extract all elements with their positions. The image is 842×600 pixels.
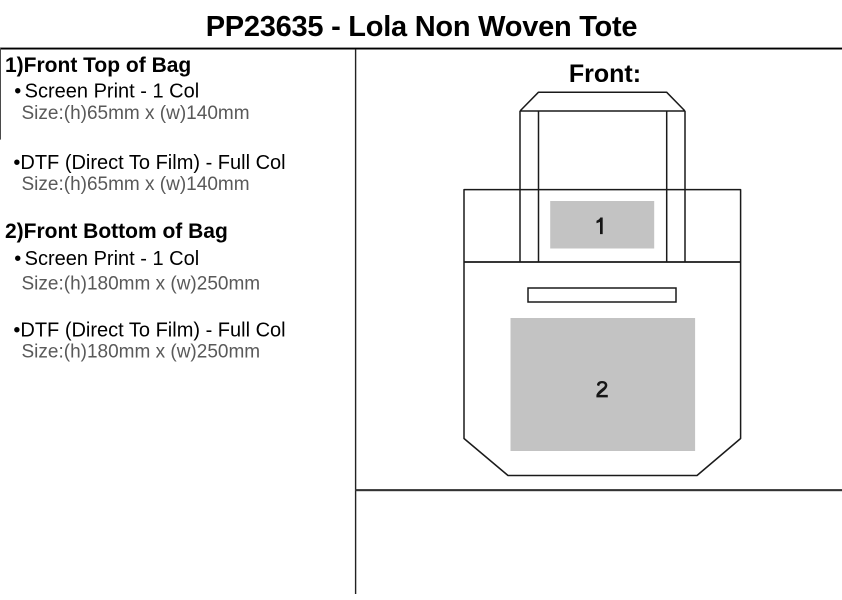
svg-text:Front:: Front:: [569, 60, 641, 88]
svg-text:Size:(h)180mm x (w)250mm: Size:(h)180mm x (w)250mm: [22, 274, 261, 295]
svg-text:2)Front Bottom of Bag: 2)Front Bottom of Bag: [5, 220, 228, 243]
svg-text:•DTF (Direct To Film) - Full C: •DTF (Direct To Film) - Full Col: [13, 320, 285, 342]
svg-text:Size:(h)65mm x (w)140mm: Size:(h)65mm x (w)140mm: [22, 103, 250, 124]
svg-text:• Screen Print - 1 Col: • Screen Print - 1 Col: [14, 248, 199, 270]
svg-text:Size:(h)180mm x (w)250mm: Size:(h)180mm x (w)250mm: [22, 342, 261, 363]
svg-text:• Screen Print - 1 Col: • Screen Print - 1 Col: [14, 81, 199, 103]
svg-text:PP23635 - Lola Non Woven Tote: PP23635 - Lola Non Woven Tote: [206, 11, 638, 43]
svg-text:•DTF (Direct To Film) - Full C: •DTF (Direct To Film) - Full Col: [13, 152, 285, 174]
svg-text:1)Front Top of Bag: 1)Front Top of Bag: [5, 54, 191, 77]
svg-text:Size:(h)65mm x (w)140mm: Size:(h)65mm x (w)140mm: [22, 174, 250, 195]
